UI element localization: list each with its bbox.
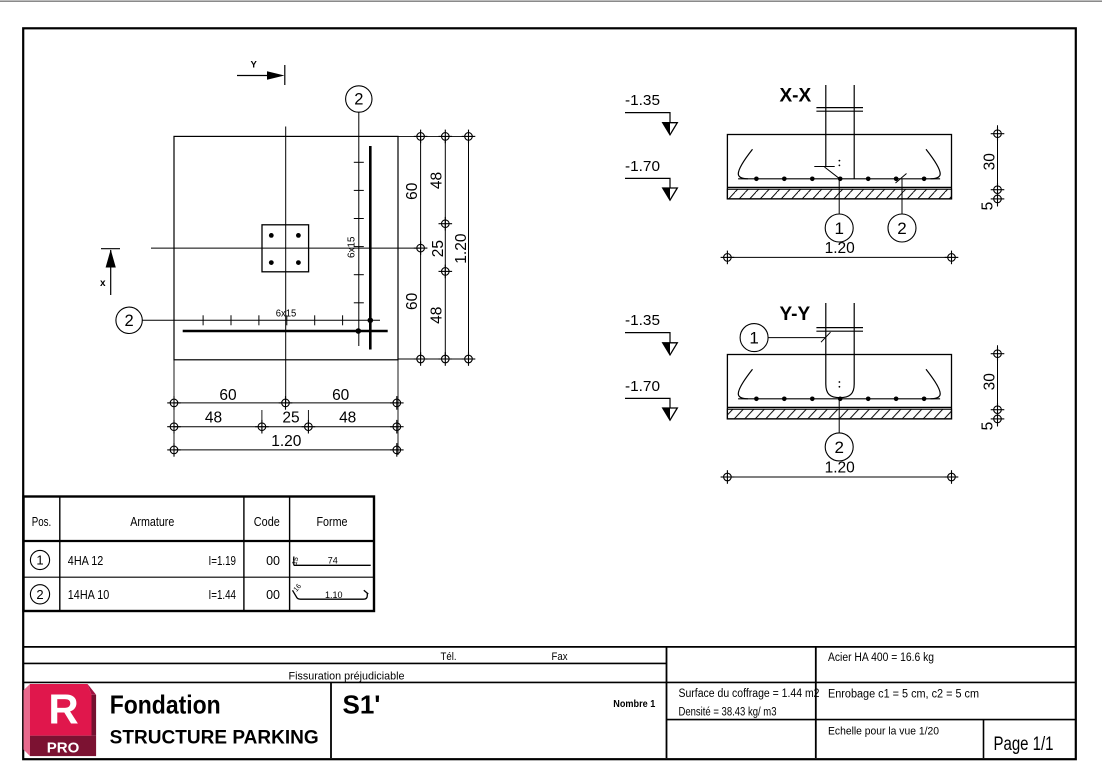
svg-text:1.20: 1.20 (453, 233, 470, 264)
svg-text:1: 1 (749, 329, 758, 348)
svg-text:30: 30 (982, 153, 999, 171)
svg-text:Densité = 38.43 kg/ m3: Densité = 38.43 kg/ m3 (679, 707, 777, 719)
svg-text:60: 60 (332, 387, 350, 404)
svg-text:Fax: Fax (552, 651, 568, 663)
svg-text:Y-Y: Y-Y (780, 304, 811, 325)
svg-text:Armature: Armature (130, 515, 174, 529)
svg-text:1.20: 1.20 (825, 240, 856, 257)
svg-text:48: 48 (429, 307, 446, 324)
svg-text:-1.35: -1.35 (625, 312, 660, 329)
svg-text:Pos.: Pos. (32, 515, 52, 529)
svg-text:48: 48 (205, 409, 222, 426)
svg-text:Enrobage c1 = 5 cm, c2 = 5 c: Enrobage c1 = 5 cm, c2 = 5 cm (828, 688, 979, 700)
svg-text:PRO: PRO (47, 740, 80, 757)
svg-text:14HA 10: 14HA 10 (68, 588, 110, 602)
svg-text:S1': S1' (343, 689, 381, 719)
svg-text:6x15: 6x15 (347, 236, 358, 258)
svg-text:Fissuration préjudiciable: Fissuration préjudiciable (289, 670, 405, 682)
svg-text:30: 30 (982, 373, 999, 391)
svg-text:60: 60 (219, 387, 237, 404)
svg-text:STRUCTURE PARKING: STRUCTURE PARKING (110, 727, 319, 748)
svg-text:Page 1/1: Page 1/1 (994, 734, 1054, 755)
svg-text:60: 60 (404, 182, 421, 200)
svg-text:-1.70: -1.70 (625, 158, 660, 175)
svg-text:25: 25 (282, 409, 299, 426)
svg-text:1.10: 1.10 (325, 590, 343, 600)
svg-text:Echelle pour la vue 1/20: Echelle pour la vue 1/20 (828, 726, 939, 738)
svg-text:I=1.19: I=1.19 (209, 554, 237, 568)
svg-text:Nombre 1: Nombre 1 (613, 699, 655, 710)
svg-text:1: 1 (36, 553, 43, 568)
svg-text:48: 48 (429, 172, 446, 189)
svg-text:6x15: 6x15 (276, 308, 297, 319)
svg-text:2: 2 (354, 91, 363, 109)
svg-text:48: 48 (339, 409, 356, 426)
svg-text:2: 2 (125, 312, 134, 330)
svg-text:4HA 12: 4HA 12 (68, 554, 104, 568)
svg-text:1.20: 1.20 (825, 460, 856, 477)
svg-text:Surface du coffrage = 1.44 m2: Surface du coffrage = 1.44 m2 (679, 688, 820, 700)
svg-text:Tél.: Tél. (441, 651, 457, 663)
svg-text:I=1.44: I=1.44 (209, 588, 237, 602)
svg-text:Forme: Forme (317, 515, 348, 529)
svg-text:74: 74 (328, 556, 338, 566)
svg-text:25: 25 (430, 240, 447, 257)
svg-text:1: 1 (834, 219, 843, 238)
svg-text:2: 2 (36, 587, 43, 602)
svg-text:-1.70: -1.70 (625, 378, 660, 395)
svg-text:x: x (100, 278, 106, 289)
svg-text:Acier HA 400 = 16.6 kg: Acier HA 400 = 16.6 kg (828, 652, 934, 664)
svg-text:2: 2 (897, 219, 906, 238)
svg-text:Code: Code (254, 515, 280, 529)
svg-text:2: 2 (834, 438, 843, 457)
svg-text:5: 5 (980, 422, 997, 431)
svg-text:00: 00 (266, 588, 280, 602)
svg-text:X-X: X-X (780, 86, 812, 107)
svg-text:Y: Y (251, 60, 258, 71)
svg-text:1.20: 1.20 (271, 433, 302, 450)
svg-text:Fondation: Fondation (110, 689, 221, 719)
svg-text:5: 5 (980, 202, 997, 211)
svg-text:00: 00 (266, 554, 280, 568)
svg-text:60: 60 (404, 292, 421, 310)
svg-text:R: R (48, 686, 78, 733)
svg-text:-1.35: -1.35 (625, 92, 660, 109)
